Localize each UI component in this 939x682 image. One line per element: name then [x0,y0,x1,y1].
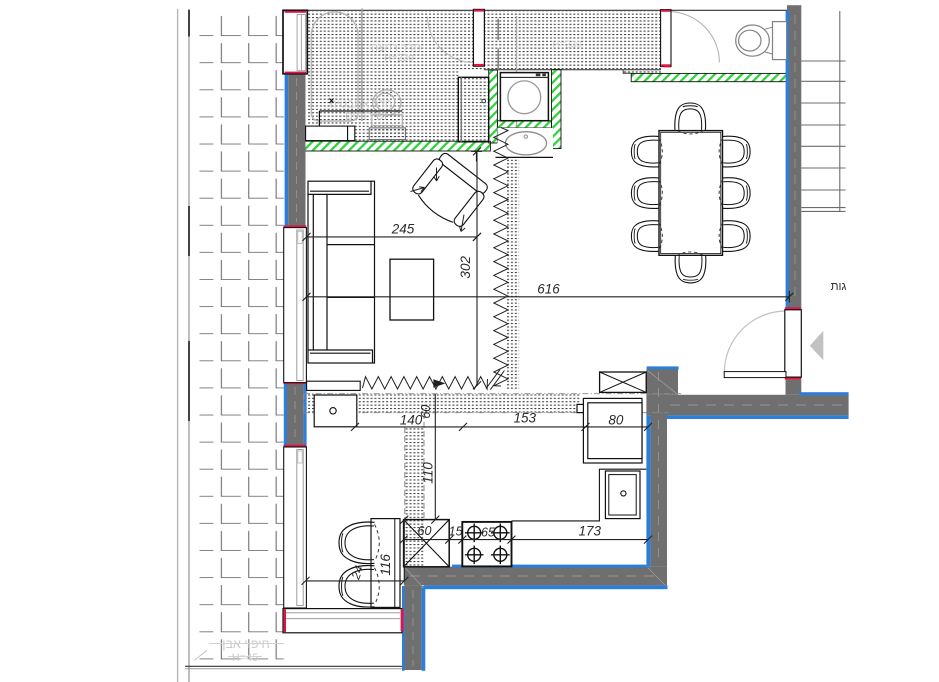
svg-text:H=230: H=230 [384,53,414,64]
svg-text:110: 110 [420,462,435,484]
svg-text:חדר אמבטיה: חדר אמבטיה [330,99,393,111]
svg-text:ושירותים: ושירותים [345,111,387,123]
svg-text:H=230: H=230 [552,40,582,51]
svg-text:60: 60 [419,405,433,419]
svg-text:616: 616 [537,282,560,297]
svg-text:302: 302 [458,256,473,279]
svg-text:173: 173 [579,524,602,539]
svg-text:60: 60 [418,524,432,538]
svg-text:15: 15 [449,525,463,539]
svg-text:65: 65 [481,526,495,540]
svg-text:גות: גות [831,281,847,293]
svg-text:H=45: H=45 [232,652,259,664]
svg-text:153: 153 [514,411,537,426]
svg-text:80: 80 [608,413,624,428]
svg-text:116: 116 [378,554,393,576]
svg-text:245: 245 [391,222,415,237]
